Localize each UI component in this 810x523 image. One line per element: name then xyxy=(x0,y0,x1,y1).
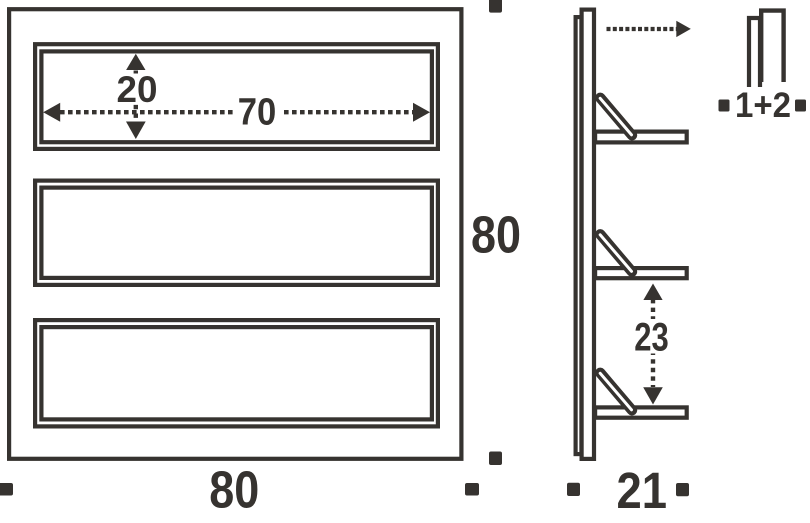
svg-text:21: 21 xyxy=(617,462,668,519)
svg-text:70: 70 xyxy=(238,92,277,134)
svg-text:1+2: 1+2 xyxy=(735,86,791,125)
svg-text:20: 20 xyxy=(117,69,158,110)
svg-text:80: 80 xyxy=(209,462,259,520)
svg-text:80: 80 xyxy=(471,206,521,264)
svg-text:23: 23 xyxy=(634,316,669,360)
